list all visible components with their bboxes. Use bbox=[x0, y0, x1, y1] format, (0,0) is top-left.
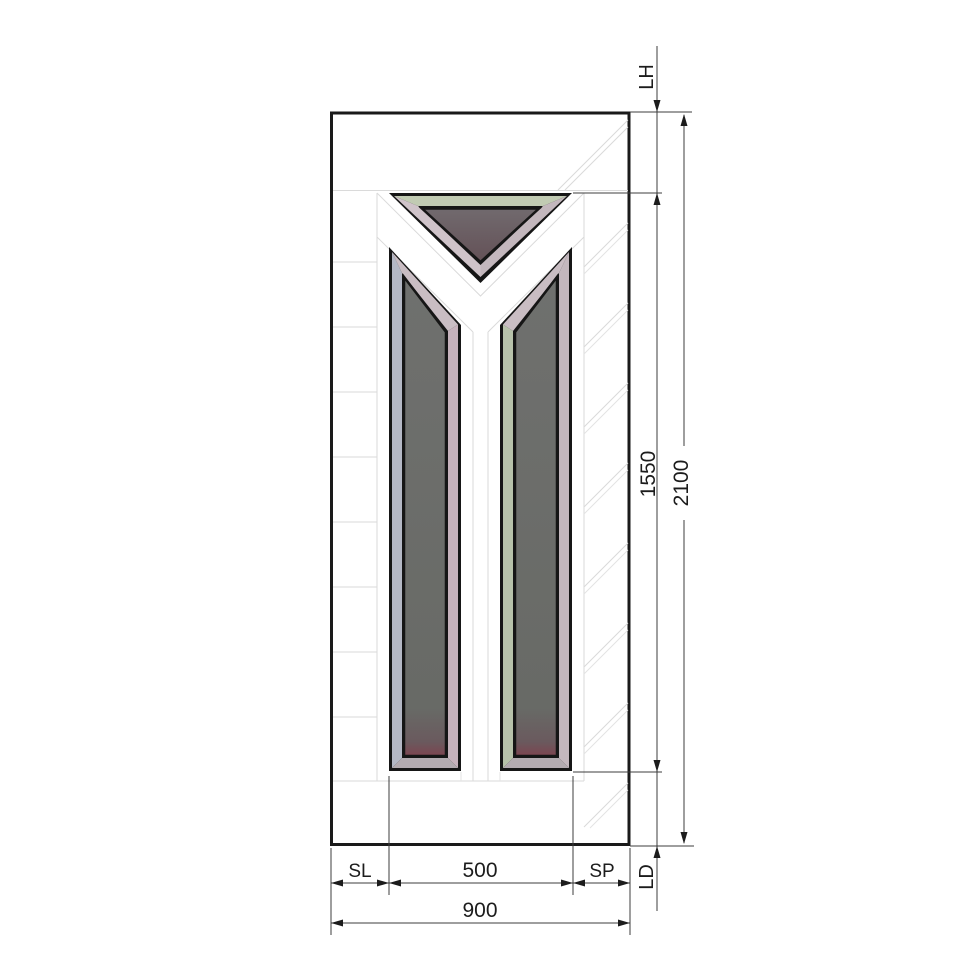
arrow-500-left bbox=[389, 880, 401, 887]
arrow-900-left bbox=[331, 920, 343, 927]
technical-drawing-canvas: LH 1550 2100 LD SL 500 SP 900 bbox=[0, 0, 960, 960]
left-panel-glass bbox=[404, 277, 446, 756]
arrow-1550-bottom bbox=[654, 760, 661, 772]
arrow-sp-left bbox=[573, 880, 585, 887]
left-panel-bevel-left bbox=[392, 252, 402, 768]
arrow-900-right bbox=[618, 920, 630, 927]
arrow-2100-top bbox=[681, 114, 688, 126]
left-window bbox=[389, 247, 461, 771]
arrow-lh-down bbox=[654, 100, 661, 112]
label-lh: LH bbox=[636, 64, 658, 90]
arrow-2100-bottom bbox=[681, 832, 688, 844]
label-glass-width: 500 bbox=[462, 859, 497, 882]
right-panel-glass bbox=[515, 277, 557, 756]
arrow-sp-right bbox=[618, 880, 630, 887]
arrow-1550-top bbox=[654, 193, 661, 205]
arrow-sl-left bbox=[331, 880, 343, 887]
left-panel-bevel-bottom bbox=[392, 758, 458, 768]
triangle-bevel-top bbox=[394, 196, 567, 206]
left-panel-bevel-right bbox=[448, 325, 458, 769]
right-panel-bevel-right bbox=[559, 252, 569, 768]
arrow-ld-up bbox=[654, 846, 661, 858]
label-sl: SL bbox=[348, 861, 371, 882]
label-door-width: 900 bbox=[462, 899, 497, 922]
label-sp: SP bbox=[589, 861, 614, 882]
arrow-500-right bbox=[561, 880, 573, 887]
label-glass-height: 1550 bbox=[637, 451, 660, 498]
right-panel-bevel-bottom bbox=[503, 758, 569, 768]
arrow-sl-right bbox=[377, 880, 389, 887]
right-window bbox=[500, 247, 572, 771]
door-drawing-svg: LH 1550 2100 LD SL 500 SP 900 bbox=[0, 0, 960, 960]
right-panel-bevel-left bbox=[503, 325, 513, 769]
label-ld: LD bbox=[636, 864, 658, 890]
label-door-height: 2100 bbox=[670, 460, 693, 507]
